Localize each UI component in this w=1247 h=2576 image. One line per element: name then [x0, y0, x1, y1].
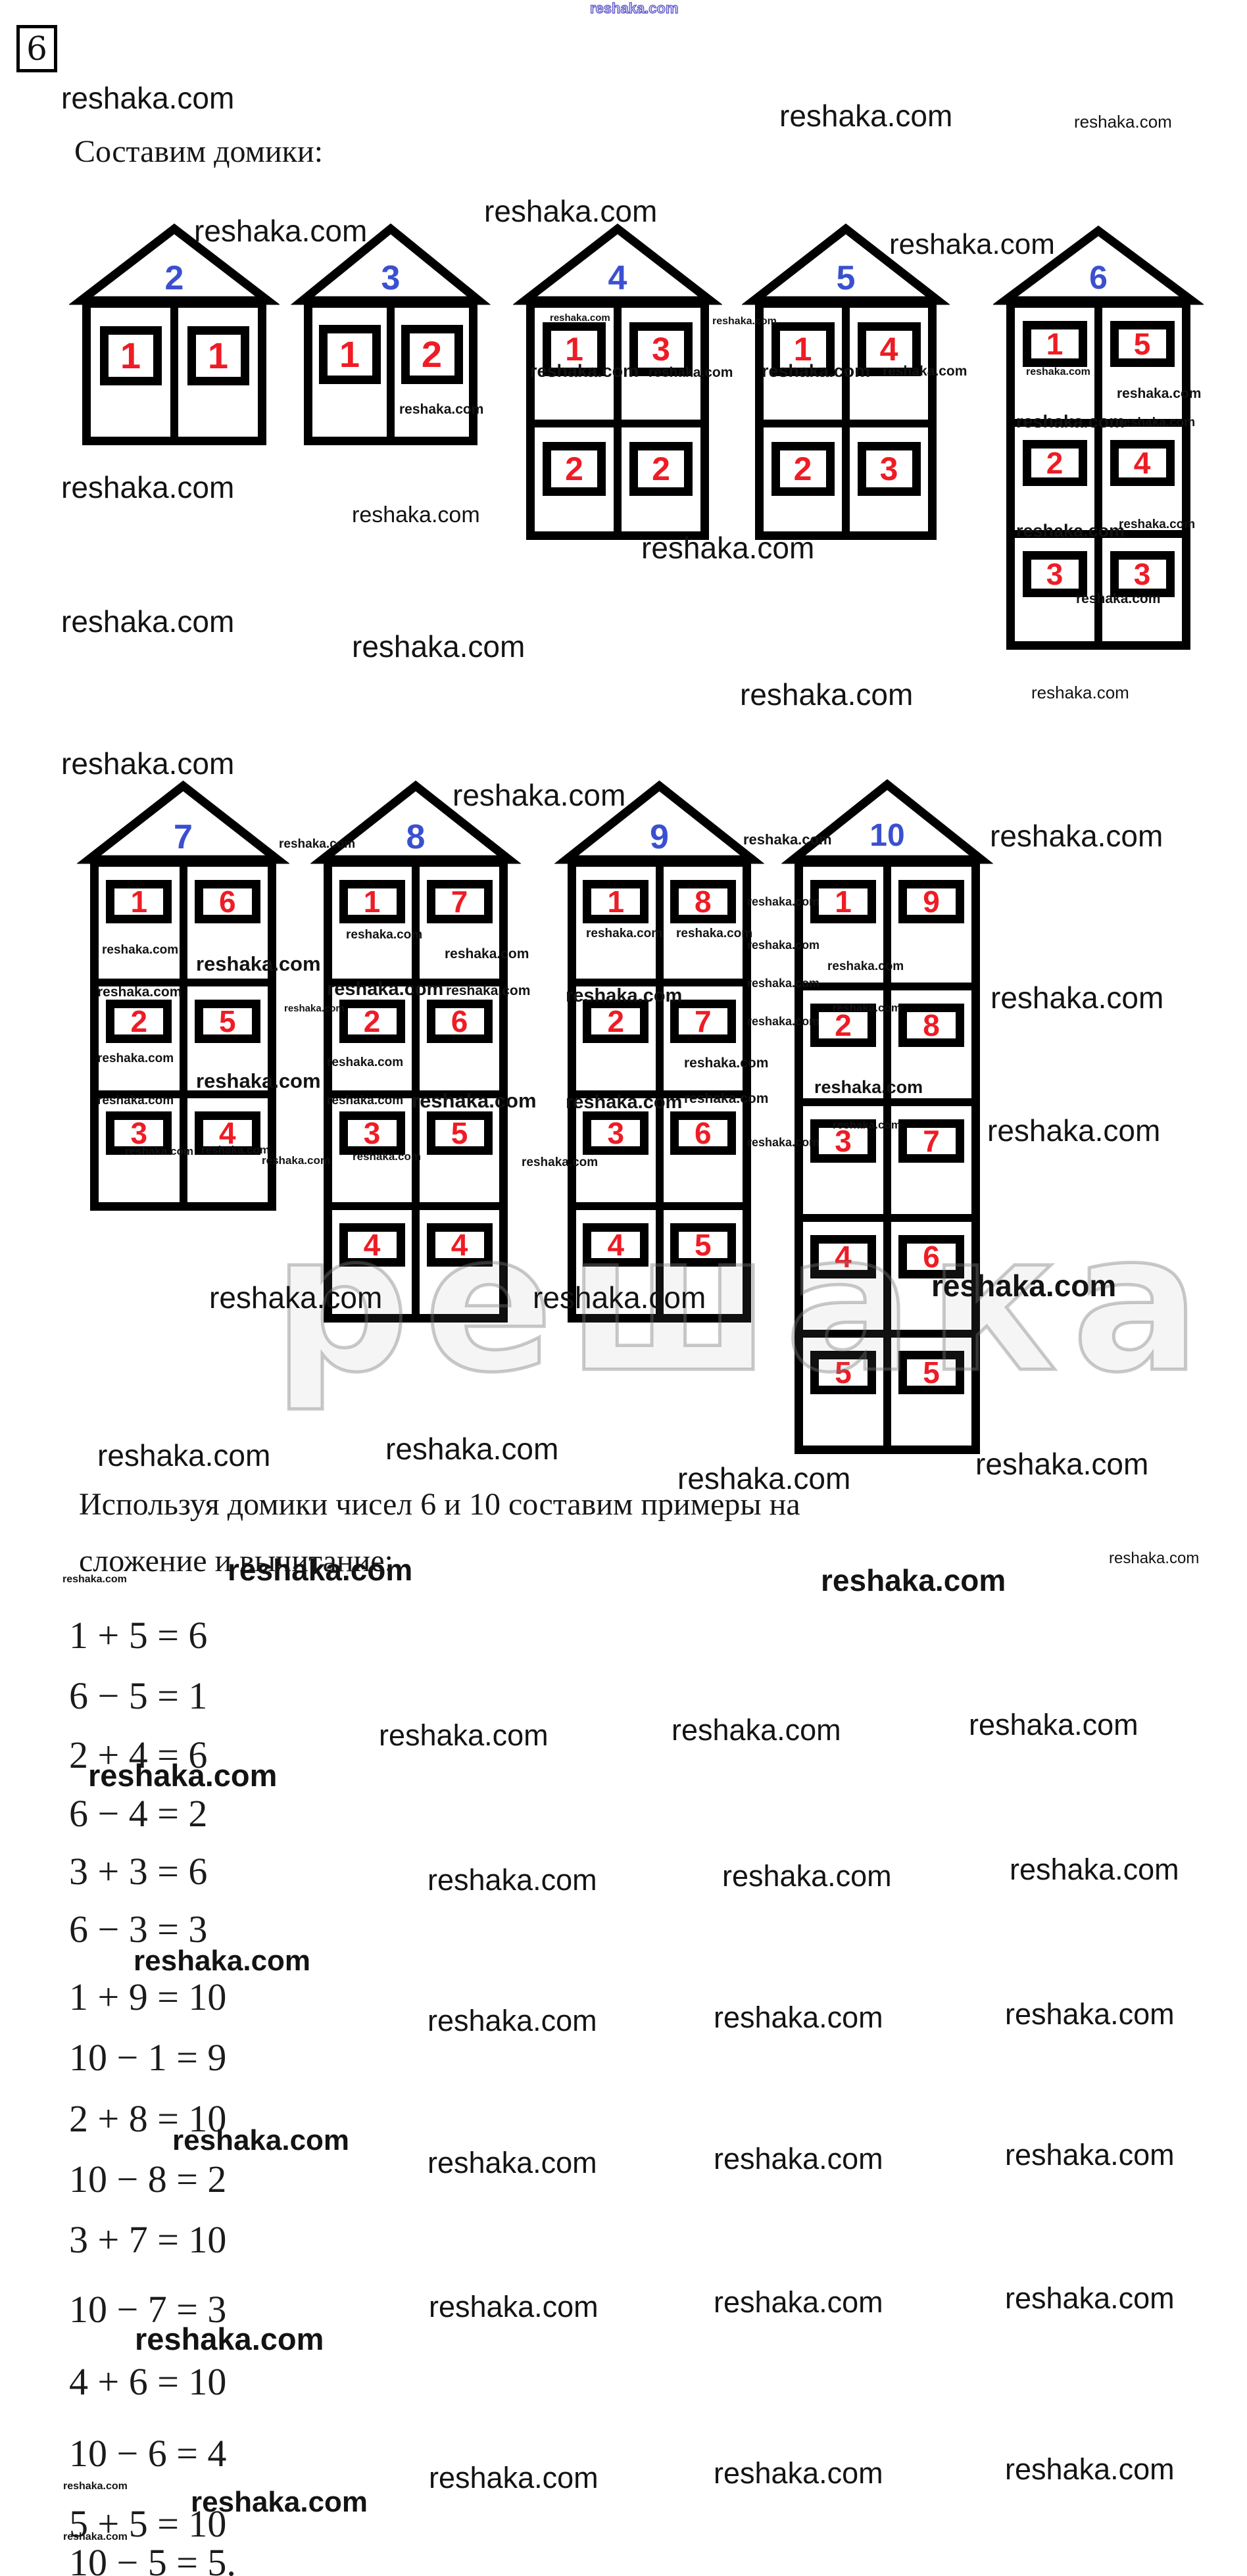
room-cell: 2	[764, 427, 842, 531]
watermark: reshaka.com	[97, 985, 182, 999]
watermark: reshaka.com	[814, 1079, 923, 1096]
house-floor: 22	[535, 420, 700, 531]
house-floor: 15	[1015, 308, 1182, 419]
watermark: reshaka.com	[279, 838, 355, 850]
watermark: reshaka.com	[747, 1136, 819, 1148]
room-number: 3	[364, 1118, 381, 1148]
watermark: reshaka.com	[228, 1555, 412, 1585]
watermark: reshaka.com	[684, 1092, 768, 1106]
solution-page: 6 Составим домики: Используя домики чисе…	[0, 0, 1247, 2576]
watermark: reshaka.com	[975, 1449, 1148, 1479]
room-number: 1	[607, 887, 624, 917]
watermark: reshaka.com	[1026, 367, 1090, 377]
equation-line: 6 − 4 = 2	[69, 1795, 207, 1833]
room-number: 1	[120, 337, 141, 374]
room-cell: 1	[312, 308, 387, 437]
watermark: reshaka.com	[833, 1119, 901, 1130]
room-box: 2	[629, 442, 693, 496]
watermark: reshaka.com	[429, 2463, 599, 2492]
room-box: 5	[1110, 321, 1175, 367]
watermark: reshaka.com	[714, 2003, 883, 2032]
watermark: reshaka.com	[762, 362, 870, 380]
watermark: reshaka.com	[1010, 1855, 1179, 1884]
room-box: 2	[771, 442, 835, 496]
room-cell: 1	[170, 308, 258, 437]
room-number: 1	[1046, 329, 1064, 359]
watermark: reshaka.com	[352, 504, 480, 526]
house-floor: 24	[1015, 419, 1182, 530]
watermark: reshaka.com	[1005, 2454, 1175, 2484]
room-box: 3	[1023, 551, 1087, 597]
room-box: 4	[1110, 440, 1175, 486]
room-cell: 1	[91, 308, 170, 437]
room-cell: 2	[387, 308, 469, 437]
house-4: 41322	[513, 224, 722, 549]
room-cell: 3	[1015, 538, 1094, 641]
room-cell: 2	[535, 427, 614, 531]
room-number: 4	[1134, 448, 1151, 478]
watermark: reshaka.com	[827, 960, 904, 973]
room-number: 3	[1046, 559, 1064, 589]
room-box: 9	[898, 880, 964, 923]
watermark: reshaka.com	[88, 1760, 277, 1791]
room-box: 7	[898, 1119, 964, 1163]
room-box: 3	[1110, 551, 1175, 597]
room-box: 3	[339, 1111, 405, 1155]
room-number: 1	[208, 337, 228, 374]
watermark: reshaka.com	[412, 1090, 537, 1111]
room-cell: 3	[842, 427, 928, 531]
watermark: reshaka.com	[714, 2287, 883, 2317]
room-cell: 1	[99, 867, 180, 979]
equation-line: 10 − 5 = 5.	[69, 2544, 236, 2576]
watermark: reshaka.com	[1016, 413, 1125, 431]
watermark: reshaka.com	[740, 679, 913, 710]
watermark: reshaka.com	[1005, 1999, 1175, 2029]
equation-line: 1 + 5 = 6	[69, 1616, 207, 1655]
equation-line: 6 − 5 = 1	[69, 1677, 207, 1715]
room-cell: 1	[576, 867, 656, 979]
house-floor: 12	[312, 308, 469, 437]
room-number: 8	[923, 1010, 940, 1040]
room-box: 6	[427, 1000, 493, 1043]
room-number: 5	[219, 1006, 236, 1036]
watermark: reshaka.com	[987, 1115, 1160, 1146]
equation-line: 6 − 3 = 3	[69, 1910, 207, 1949]
watermark: reshaka.com	[1005, 2140, 1175, 2170]
room-number: 5	[1134, 329, 1151, 359]
watermark: reshaka.com	[969, 1710, 1138, 1739]
watermark: reshaka.com	[779, 101, 952, 131]
watermark: reshaka.com	[990, 821, 1163, 851]
room-box: 2	[543, 442, 606, 496]
room-number: 4	[880, 333, 898, 366]
room-number: 8	[695, 887, 712, 917]
room-number: 2	[652, 452, 670, 485]
watermark: reshaka.com	[102, 944, 178, 956]
room-box: 3	[858, 442, 921, 496]
room-box: 2	[1023, 440, 1087, 486]
watermark: reshaka.com	[1119, 518, 1195, 531]
room-number: 2	[130, 1006, 147, 1036]
room-box: 5	[195, 1000, 260, 1043]
watermark: reshaka.com	[201, 1144, 270, 1155]
watermark: reshaka.com	[379, 1720, 549, 1750]
watermark: reshaka.com	[1117, 387, 1201, 401]
room-box: 1	[187, 326, 249, 385]
roof-number: 3	[291, 261, 491, 295]
house-floor: 33	[1015, 530, 1182, 641]
watermark: reshaka.com	[889, 230, 1055, 259]
watermark: reshaka.com	[1074, 113, 1172, 130]
room-number: 1	[364, 887, 381, 917]
watermark: reshaka.com	[747, 939, 819, 951]
room-cell: 8	[656, 867, 743, 979]
room-box: 3	[583, 1111, 648, 1155]
room-cell: 2	[1015, 427, 1094, 530]
watermark: reshaka.com	[1016, 522, 1125, 540]
watermark: reshaka.com	[61, 83, 234, 113]
watermark: reshaka.com	[648, 366, 733, 379]
room-box: 7	[427, 880, 493, 923]
page-number-box: 6	[16, 25, 57, 72]
room-number: 7	[923, 1126, 940, 1156]
watermark: reshaka.com	[61, 748, 234, 779]
watermark: reshaka.com	[747, 977, 819, 989]
watermark: reshaka.com	[428, 2148, 597, 2177]
watermark: reshaka.com	[327, 1056, 403, 1069]
watermark: reshaka.com	[353, 1151, 421, 1162]
roof-number: 5	[742, 261, 950, 295]
room-cell: 6	[412, 986, 499, 1090]
house-body: 12	[304, 299, 477, 445]
room-cell: 3	[576, 1098, 656, 1202]
watermark: reshaka.com	[452, 780, 625, 810]
room-cell: 5	[1094, 308, 1182, 419]
room-number: 6	[451, 1006, 468, 1036]
room-cell: 6	[656, 1098, 743, 1202]
room-box: 1	[1023, 321, 1087, 367]
watermark: reshaka.com	[586, 927, 662, 940]
watermark: reshaka.com	[61, 472, 234, 502]
room-number: 6	[695, 1118, 712, 1148]
equation-line: 3 + 3 = 6	[69, 1853, 207, 1891]
equation-line: 10 − 8 = 2	[69, 2160, 226, 2199]
watermark: reshaka.com	[550, 313, 610, 323]
watermark: reshaka.com	[533, 1282, 706, 1313]
watermark: reshaka.com	[1005, 2283, 1175, 2313]
watermark: reshaka.com	[327, 1094, 403, 1107]
room-number: 2	[422, 336, 442, 373]
watermark: reshaka.com	[990, 983, 1163, 1013]
watermark: reshaka.com	[327, 980, 443, 999]
equation-line: 10 − 6 = 4	[69, 2435, 226, 2473]
watermark: reshaka.com	[714, 2458, 883, 2488]
room-number: 1	[339, 336, 360, 373]
room-box: 1	[100, 326, 162, 385]
roof-number: 7	[77, 820, 289, 854]
house-5: 51423	[742, 224, 950, 549]
room-number: 7	[451, 887, 468, 917]
watermark: reshaka.com	[428, 1865, 597, 1895]
room-cell: 7	[412, 867, 499, 979]
house-body: 162534	[90, 858, 276, 1211]
equation-line: 10 − 1 = 9	[69, 2039, 226, 2077]
watermark: reshaka.com	[135, 2323, 324, 2354]
watermark: reshaka.com	[428, 2006, 597, 2035]
watermark: reshaka.com	[883, 364, 967, 378]
watermark: reshaka.com	[209, 1282, 382, 1313]
house-body: 11	[82, 299, 266, 445]
watermark: reshaka.com	[1119, 416, 1195, 429]
watermark: reshaka.com	[385, 1434, 558, 1464]
watermark: reshaka.com	[196, 954, 321, 974]
room-number: 2	[364, 1006, 381, 1036]
watermark: reshaka.com	[194, 216, 367, 246]
room-cell: 5	[412, 1098, 499, 1202]
watermark: reshaka.com	[641, 533, 814, 563]
room-number: 2	[607, 1006, 624, 1036]
room-cell: 4	[1094, 427, 1182, 530]
watermark: reshaka.com	[446, 984, 530, 998]
watermark: reshaka.com	[672, 1715, 841, 1745]
room-box: 6	[670, 1111, 736, 1155]
room-box: 8	[898, 1004, 964, 1047]
room-box: 2	[401, 325, 463, 384]
house-body: 1423	[755, 299, 937, 540]
watermark: reshaka.com	[61, 606, 234, 637]
watermark: reshaka.com	[676, 927, 752, 940]
room-number: 2	[1046, 448, 1064, 478]
room-cell: 1	[1015, 308, 1094, 419]
room-number: 1	[835, 887, 852, 917]
watermark: reshaka.com	[833, 1002, 901, 1013]
room-number: 3	[880, 452, 898, 485]
watermark: reshaka.com	[134, 1947, 310, 1976]
room-number: 6	[219, 887, 236, 917]
room-cell: 1	[332, 867, 412, 979]
watermark: reshaka.com	[191, 2488, 368, 2517]
room-number: 2	[835, 1010, 852, 1040]
watermark: reshaka.com	[399, 402, 483, 416]
watermark: reshaka.com	[284, 1004, 345, 1013]
roof-number: 2	[69, 261, 280, 295]
watermark: reshaka.com	[63, 2481, 128, 2492]
watermark: reshaka.com	[262, 1155, 330, 1166]
watermark: reshaka.com	[97, 1052, 174, 1065]
equation-line: 1 + 9 = 10	[69, 1978, 226, 2016]
room-number: 2	[794, 452, 812, 485]
watermark: reshaka.com	[714, 2144, 883, 2174]
watermark: reshaka.com	[1031, 684, 1129, 701]
house-floor: 11	[91, 308, 258, 437]
watermark: reshaka.com	[743, 833, 832, 847]
room-box: 1	[583, 880, 648, 923]
house-floor: 23	[764, 420, 928, 531]
room-box: 1	[106, 880, 172, 923]
room-box: 1	[319, 325, 381, 384]
room-box: 1	[810, 880, 876, 923]
watermark: reshaka.com	[1076, 592, 1160, 606]
room-number: 3	[652, 333, 670, 366]
room-box: 2	[339, 1000, 405, 1043]
watermark: reshaka.com	[931, 1271, 1116, 1301]
room-number: 5	[451, 1118, 468, 1148]
house-floor: 18	[576, 867, 743, 979]
room-number: 7	[695, 1006, 712, 1036]
room-cell: 2	[332, 986, 412, 1090]
watermark: reshaka.com	[566, 986, 682, 1006]
room-box: 6	[195, 880, 260, 923]
room-number: 9	[923, 887, 940, 917]
room-box: 8	[670, 880, 736, 923]
house-3: 312	[291, 224, 491, 454]
room-cell: 2	[99, 986, 180, 1090]
watermark: reshaka.com	[484, 196, 657, 226]
roof-number: 4	[513, 261, 722, 295]
room-number: 3	[130, 1118, 147, 1148]
room-box: 1	[339, 880, 405, 923]
watermark: reshaka.com	[722, 1861, 892, 1891]
watermark: reshaka.com	[747, 896, 819, 908]
watermark: reshaka.com	[62, 1574, 127, 1585]
watermark-top-purple: reshaka.com	[590, 1, 679, 16]
roof-number: 6	[993, 261, 1204, 294]
house-2: 211	[69, 224, 280, 454]
room-number: 3	[1134, 559, 1151, 589]
watermark: reshaka.com	[346, 929, 422, 941]
heading-main: Составим домики:	[74, 135, 323, 170]
watermark: reshaka.com	[97, 1094, 174, 1107]
room-cell: 2	[614, 427, 700, 531]
watermark: reshaka.com	[566, 1093, 682, 1112]
room-number: 3	[607, 1118, 624, 1148]
watermark: reshaka.com	[522, 1156, 598, 1169]
watermark: reshaka.com	[429, 2292, 599, 2321]
watermark: reshaka.com	[747, 1015, 819, 1027]
room-number: 2	[565, 452, 583, 485]
watermark: reshaka.com	[352, 631, 525, 662]
room-number: 1	[130, 887, 147, 917]
room-cell: 3	[1094, 538, 1182, 641]
house-body: 1322	[526, 299, 709, 540]
watermark: reshaka.com	[125, 1146, 193, 1157]
watermark: reshaka.com	[821, 1565, 1006, 1595]
house-floor: 17	[332, 867, 499, 979]
equation-line: 4 + 6 = 10	[69, 2363, 226, 2401]
watermark: reshaka.com	[684, 1056, 768, 1070]
watermark: reshaka.com	[1109, 1551, 1199, 1567]
watermark: reshaka.com	[172, 2126, 349, 2155]
room-box: 2	[106, 1000, 172, 1043]
watermark: reshaka.com	[196, 1071, 321, 1091]
equation-line: 3 + 7 = 10	[69, 2221, 226, 2259]
watermark: reshaka.com	[677, 1463, 850, 1494]
watermark: reshaka.com	[97, 1440, 270, 1470]
watermark: reshaka.com	[712, 316, 777, 327]
page-number: 6	[26, 30, 47, 68]
watermark: reshaka.com	[530, 362, 639, 380]
watermark: reshaka.com	[63, 2532, 128, 2542]
watermark: reshaka.com	[445, 947, 529, 961]
room-box: 5	[427, 1111, 493, 1155]
roof-number: 9	[554, 820, 764, 854]
